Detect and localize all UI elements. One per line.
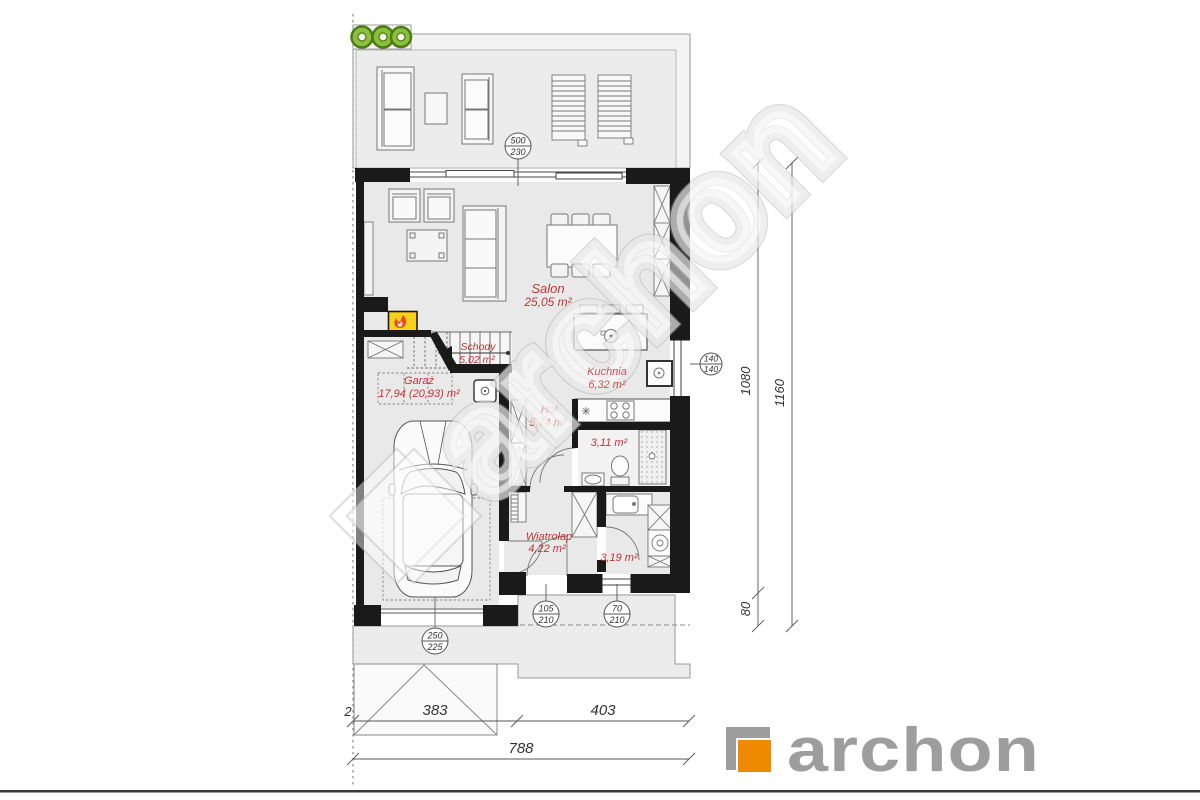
svg-text:403: 403 (590, 702, 616, 719)
svg-text:105: 105 (538, 604, 554, 614)
svg-text:140: 140 (704, 354, 718, 364)
svg-text:2: 2 (343, 704, 352, 719)
svg-text:3,19 m²: 3,19 m² (600, 552, 638, 564)
svg-text:Kuchnia: Kuchnia (587, 366, 627, 378)
svg-text:210: 210 (537, 615, 553, 625)
svg-text:250: 250 (426, 631, 442, 641)
svg-text:1160: 1160 (772, 378, 787, 407)
svg-text:210: 210 (608, 615, 624, 625)
svg-text:Wiatrołap: Wiatrołap (526, 531, 572, 543)
svg-text:788: 788 (508, 740, 534, 757)
svg-text:383: 383 (422, 702, 448, 719)
svg-text:70: 70 (612, 604, 622, 614)
svg-text:80: 80 (738, 601, 753, 616)
svg-text:140: 140 (704, 364, 718, 374)
svg-text:6,32 m²: 6,32 m² (588, 379, 626, 391)
svg-text:500: 500 (510, 136, 525, 146)
svg-text:225: 225 (426, 642, 443, 652)
svg-text:230: 230 (509, 147, 525, 157)
svg-text:1080: 1080 (738, 366, 753, 396)
svg-text:archon: archon (787, 716, 1040, 785)
svg-text:4,22 m²: 4,22 m² (528, 543, 566, 555)
